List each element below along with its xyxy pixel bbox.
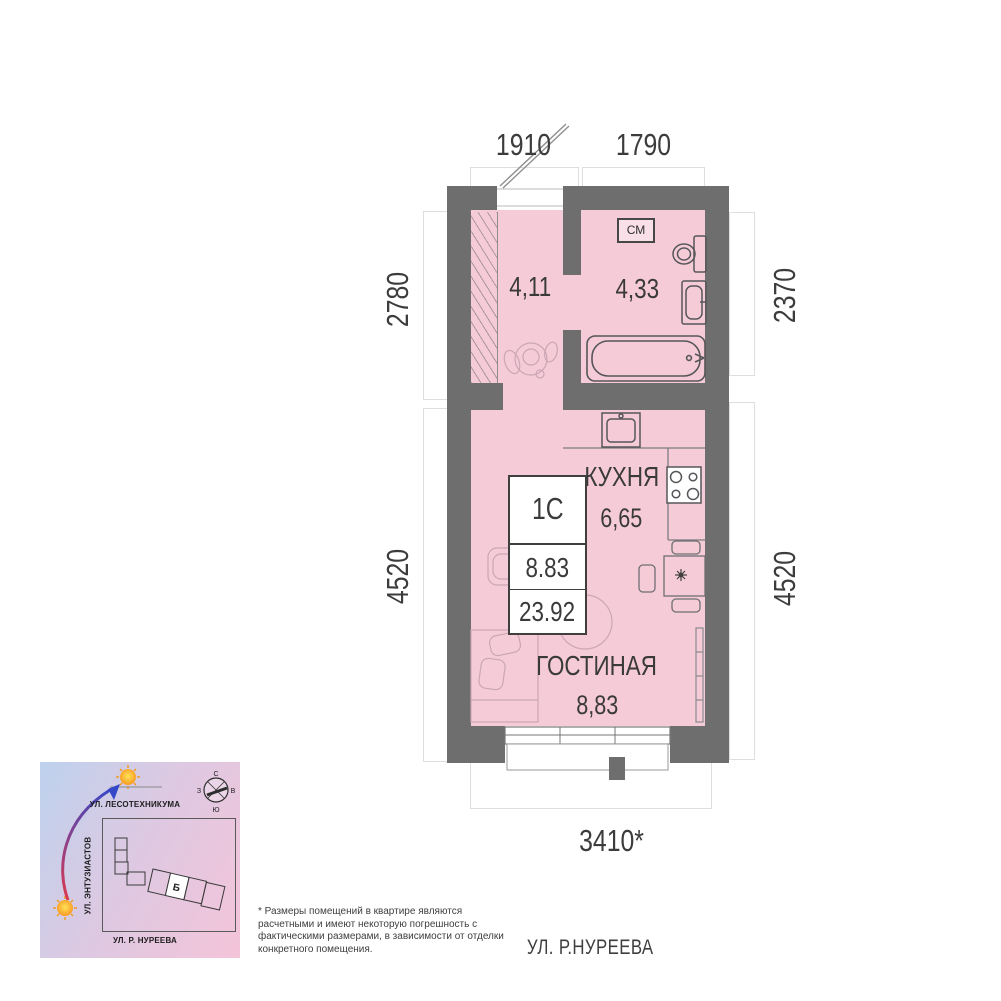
compass-n: С xyxy=(213,771,218,778)
partition-hall-bath-lower xyxy=(563,330,581,383)
dim-top-right: 1790 xyxy=(593,128,693,162)
total-area-cell: 23.92 xyxy=(510,590,585,633)
living-area-cell: 8.83 xyxy=(510,545,585,590)
witness-box-right-top xyxy=(729,212,755,376)
living-title: ГОСТИНАЯ xyxy=(497,650,697,682)
compass-s: Ю xyxy=(212,807,219,814)
dim-bottom-value: 3410* xyxy=(580,824,645,858)
dim-bottom: 3410* xyxy=(542,824,682,858)
witness-box-right-bottom xyxy=(729,402,755,760)
kitchen-title-text: КУХНЯ xyxy=(585,461,660,493)
sun-icon-bottom xyxy=(53,896,77,920)
dim-right-top: 2370 xyxy=(768,256,802,336)
map-street-bottom: УЛ. Р. НУРЕЕВА xyxy=(95,936,195,945)
dim-right-top-value: 2370 xyxy=(768,268,802,323)
window xyxy=(505,727,670,744)
info-living-area-value: 8.83 xyxy=(526,545,570,591)
wall-mid-right xyxy=(563,383,729,410)
wall-bottom-left xyxy=(447,726,505,763)
dim-top-right-value: 1790 xyxy=(615,128,670,162)
wall-left xyxy=(447,186,471,763)
partition-hall-bath-upper xyxy=(563,210,581,275)
dim-top-left: 1910 xyxy=(473,128,573,162)
hall-living-passage xyxy=(503,383,563,410)
living-area-label: 8,83 xyxy=(527,689,667,721)
washing-machine-label: СМ xyxy=(627,223,646,237)
dim-right-bottom: 4520 xyxy=(768,539,802,619)
witness-box-left-bottom xyxy=(423,408,449,762)
apartment-type-value: 1С xyxy=(532,477,564,541)
compass-w: З xyxy=(197,788,201,795)
witness-box-left-top xyxy=(423,211,449,400)
dim-left-top: 2780 xyxy=(381,260,415,340)
wall-mid-left-stub xyxy=(447,383,503,410)
living-area-value: 8,83 xyxy=(576,689,618,721)
street-label-nureeva: УЛ. Р.НУРЕЕВА xyxy=(470,936,710,960)
washing-machine-box: СМ xyxy=(617,218,655,243)
info-total-area-value: 23.92 xyxy=(519,590,575,634)
apartment-type-cell: 1С xyxy=(510,477,585,545)
street-label-text: УЛ. Р.НУРЕЕВА xyxy=(527,936,654,960)
dim-left-top-value: 2780 xyxy=(381,272,415,327)
wall-top-right xyxy=(563,186,729,210)
location-map: С В Ю З Б УЛ. ЛЕСОТЕХНИКУМА УЛ. ЭНТУЗИАС… xyxy=(40,762,240,958)
bathroom-area-value: 4,33 xyxy=(615,273,659,305)
wall-right xyxy=(705,186,729,763)
dim-right-bottom-value: 4520 xyxy=(768,551,802,606)
hallway-area-label: 4,11 xyxy=(480,271,580,303)
hallway-area-value: 4,11 xyxy=(509,271,551,303)
dim-left-bottom-value: 4520 xyxy=(381,549,415,604)
map-street-left: УЛ. ЭНТУЗИАСТОВ xyxy=(84,831,93,921)
apartment-info-box: 1С 8.83 23.92 xyxy=(508,475,587,635)
witness-box-bottom xyxy=(470,763,712,809)
wall-top-left xyxy=(447,186,497,210)
wall-bottom-right xyxy=(670,726,729,763)
compass-e: В xyxy=(231,788,236,795)
kitchen-area-value: 6,65 xyxy=(600,502,642,534)
dim-top-left-value: 1910 xyxy=(495,128,550,162)
compass-icon: С В Ю З xyxy=(197,771,236,814)
living-title-text: ГОСТИНАЯ xyxy=(537,650,658,682)
bathroom-area-label: 4,33 xyxy=(587,273,687,305)
map-street-top: УЛ. ЛЕСОТЕХНИКУМА xyxy=(80,800,190,809)
map-street-frame xyxy=(102,818,236,932)
dim-left-bottom: 4520 xyxy=(381,537,415,617)
